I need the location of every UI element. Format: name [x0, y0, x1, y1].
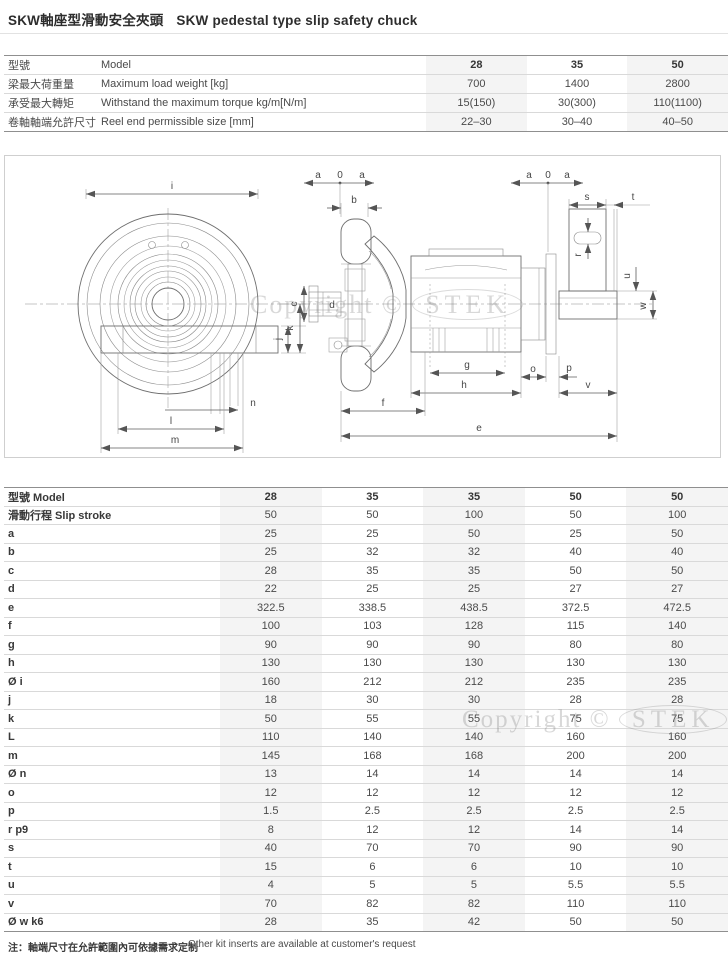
spec-label-en: Maximum load weight [kg]	[99, 75, 426, 94]
dim-label-m: m	[171, 435, 179, 446]
flange-top-rim	[341, 219, 371, 264]
dimension-row: 滑動行程 Slip stroke505010050100	[4, 506, 728, 525]
dimension-value: 140	[423, 728, 525, 747]
dimension-table-body: 型號 Model2835355050滑動行程 Slip stroke505010…	[4, 488, 728, 932]
dimension-value: 25	[423, 580, 525, 599]
dimension-row: g9090908080	[4, 636, 728, 655]
dimension-value: 50	[423, 525, 525, 544]
dimension-value: 115	[525, 617, 627, 636]
dim-label-l: l	[170, 416, 172, 427]
dimension-value: 12	[525, 784, 627, 803]
dimension-value: 15	[220, 858, 322, 877]
dimension-value: 30	[322, 691, 424, 710]
dim-label-p: p	[566, 363, 572, 374]
spec-row: 承受最大轉矩Withstand the maximum torque kg/m[…	[4, 94, 728, 113]
dimension-value: 14	[525, 765, 627, 784]
dimension-value: 5.5	[626, 876, 728, 895]
dimension-value: 50	[525, 913, 627, 932]
dimension-value: 2.5	[322, 802, 424, 821]
spec-value: 1400	[527, 75, 628, 94]
dim-label-a: a	[315, 170, 321, 181]
dimension-value: 103	[322, 617, 424, 636]
dimension-row-label: k	[4, 710, 220, 729]
spec-label-en: Model	[99, 56, 426, 75]
dimension-row-label: h	[4, 654, 220, 673]
dimension-value: 25	[220, 525, 322, 544]
dimension-value: 40	[525, 543, 627, 562]
dimension-row-label: s	[4, 839, 220, 858]
dimension-value: 90	[525, 839, 627, 858]
dim-label-o: o	[530, 364, 536, 375]
dimension-value: 168	[322, 747, 424, 766]
dimension-value: 14	[525, 821, 627, 840]
dimension-row-label: Ø i	[4, 673, 220, 692]
dimension-row: u4555.55.5	[4, 876, 728, 895]
dimension-row-label: o	[4, 784, 220, 803]
dimension-row-label: r p9	[4, 821, 220, 840]
dimension-value: 75	[626, 710, 728, 729]
dim-label-c: c	[289, 302, 300, 307]
dimension-header-value: 50	[626, 488, 728, 507]
dimension-value: 32	[322, 543, 424, 562]
dimension-value: 42	[423, 913, 525, 932]
dimension-value: 70	[322, 839, 424, 858]
key-slot	[574, 232, 601, 244]
title-divider	[0, 33, 728, 34]
dimension-value: 128	[423, 617, 525, 636]
dimension-row-label: 滑動行程 Slip stroke	[4, 506, 220, 525]
dim-label-w: w	[638, 302, 649, 311]
dim-label-s: s	[585, 192, 590, 203]
dimension-row-label: f	[4, 617, 220, 636]
dimension-value: 160	[525, 728, 627, 747]
dimension-value: 40	[626, 543, 728, 562]
bolt-hole-icon	[149, 242, 156, 249]
dimension-value: 35	[322, 913, 424, 932]
dimension-value: 70	[220, 895, 322, 914]
dimension-value: 438.5	[423, 599, 525, 618]
dimension-row: r p9812121414	[4, 821, 728, 840]
dimension-value: 50	[626, 562, 728, 581]
dimension-row: Ø w k62835425050	[4, 913, 728, 932]
page-title: SKW軸座型滑動安全夾頭SKW pedestal type slip safet…	[8, 9, 417, 29]
dimension-value: 28	[525, 691, 627, 710]
spec-row: 型號Model283550	[4, 56, 728, 75]
dimension-row-label: a	[4, 525, 220, 544]
dimension-value: 50	[525, 562, 627, 581]
dimension-value: 130	[423, 654, 525, 673]
dimension-value: 12	[423, 821, 525, 840]
dim-label-j: j	[273, 338, 284, 341]
spec-label-cn: 梁最大荷重量	[4, 75, 99, 94]
spec-value: 30–40	[527, 113, 628, 132]
dimension-value: 50	[220, 506, 322, 525]
dim-label-e: e	[476, 423, 482, 434]
dimension-row-label: v	[4, 895, 220, 914]
dimension-row: Ø i160212212235235	[4, 673, 728, 692]
dimension-value: 2.5	[626, 802, 728, 821]
dimension-value: 82	[423, 895, 525, 914]
dimension-header-value: 35	[423, 488, 525, 507]
spec-value: 40–50	[627, 113, 728, 132]
dimension-row-label: b	[4, 543, 220, 562]
dimension-value: 22	[220, 580, 322, 599]
dimension-value: 2.5	[423, 802, 525, 821]
technical-drawing: i k j n l m	[4, 155, 721, 458]
dimension-value: 140	[322, 728, 424, 747]
dimension-value: 75	[525, 710, 627, 729]
dimension-value: 25	[525, 525, 627, 544]
dimension-row-label: p	[4, 802, 220, 821]
dimension-value: 90	[220, 636, 322, 655]
dim-label-n: n	[250, 398, 256, 409]
dimension-row-label: t	[4, 858, 220, 877]
dimension-value: 25	[322, 580, 424, 599]
dimension-value: 235	[525, 673, 627, 692]
dimension-value: 90	[626, 839, 728, 858]
dimension-value: 10	[525, 858, 627, 877]
dimension-value: 2.5	[525, 802, 627, 821]
dimension-value: 110	[525, 895, 627, 914]
dimension-row-label: Ø w k6	[4, 913, 220, 932]
dimension-value: 160	[220, 673, 322, 692]
dim-label-k: k	[285, 325, 296, 331]
dimension-value: 18	[220, 691, 322, 710]
dimension-value: 140	[626, 617, 728, 636]
dimension-value: 100	[423, 506, 525, 525]
dimension-row-label: d	[4, 580, 220, 599]
chuck-drawing-svg: i k j n l m	[5, 156, 720, 457]
dimension-value: 12	[626, 784, 728, 803]
dimension-value: 50	[322, 506, 424, 525]
dimension-value: 12	[220, 784, 322, 803]
flange-web	[348, 264, 362, 346]
dimension-value: 13	[220, 765, 322, 784]
dimension-value: 50	[626, 913, 728, 932]
dimension-row: h130130130130130	[4, 654, 728, 673]
dim-label-f: f	[382, 398, 385, 409]
dimension-row: j1830302828	[4, 691, 728, 710]
dimension-value: 25	[322, 525, 424, 544]
flange-bottom-rim	[341, 346, 371, 391]
dimension-row: Ø n1314141414	[4, 765, 728, 784]
dimension-value: 100	[220, 617, 322, 636]
dimension-value: 55	[423, 710, 525, 729]
dim-label-r: r	[573, 253, 584, 257]
dimension-value: 12	[322, 821, 424, 840]
dimension-value: 40	[220, 839, 322, 858]
dimension-value: 14	[423, 765, 525, 784]
datasheet-page: SKW軸座型滑動安全夾頭SKW pedestal type slip safet…	[0, 0, 728, 975]
dimension-row: e322.5338.5438.5372.5472.5	[4, 599, 728, 618]
front-view-dimensions: i k j n l m	[86, 181, 306, 453]
dimension-value: 32	[423, 543, 525, 562]
dimension-value: 50	[626, 525, 728, 544]
dimension-row: a2525502550	[4, 525, 728, 544]
dimension-value: 130	[322, 654, 424, 673]
dimension-row: k5055557575	[4, 710, 728, 729]
dimension-value: 212	[423, 673, 525, 692]
dimension-header-row: 型號 Model2835355050	[4, 488, 728, 507]
dimension-value: 1.5	[220, 802, 322, 821]
page-title-cn: SKW軸座型滑動安全夾頭	[8, 13, 163, 28]
dimension-value: 12	[322, 784, 424, 803]
dimension-header-label: 型號 Model	[4, 488, 220, 507]
dimension-row-label: j	[4, 691, 220, 710]
dimension-value: 338.5	[322, 599, 424, 618]
dimension-value: 28	[220, 913, 322, 932]
dimension-value: 14	[626, 765, 728, 784]
output-shaft	[559, 291, 617, 319]
spec-row: 卷軸軸端允許尺寸Reel end permissible size [mm]22…	[4, 113, 728, 132]
dimension-value: 5	[423, 876, 525, 895]
dimension-row: b2532324040	[4, 543, 728, 562]
footnote-en: Other kit inserts are available at custo…	[188, 939, 416, 950]
dimension-header-value: 28	[220, 488, 322, 507]
spec-value: 22–30	[426, 113, 527, 132]
dimension-value: 322.5	[220, 599, 322, 618]
dimension-header-value: 50	[525, 488, 627, 507]
dimension-row: s4070709090	[4, 839, 728, 858]
dimension-value: 160	[626, 728, 728, 747]
section-view-dimensions: a 0 a a 0 a b c d	[289, 170, 657, 442]
dimension-value: 80	[525, 636, 627, 655]
spec-value: 15(150)	[426, 94, 527, 113]
dimension-value: 6	[423, 858, 525, 877]
spec-label-en: Reel end permissible size [mm]	[99, 113, 426, 132]
spec-table-body: 型號Model283550梁最大荷重量Maximum load weight […	[4, 56, 728, 132]
dimension-value: 4	[220, 876, 322, 895]
dimension-value: 70	[423, 839, 525, 858]
spec-value: 30(300)	[527, 94, 628, 113]
dimension-value: 30	[423, 691, 525, 710]
dim-label-t: t	[632, 192, 635, 203]
dimension-row: t15661010	[4, 858, 728, 877]
spec-value: 110(1100)	[627, 94, 728, 113]
dimension-value: 5.5	[525, 876, 627, 895]
dim-label-h: h	[461, 380, 467, 391]
dimension-value: 130	[626, 654, 728, 673]
spec-label-cn: 型號	[4, 56, 99, 75]
dimension-row: v708282110110	[4, 895, 728, 914]
spec-table: 型號Model283550梁最大荷重量Maximum load weight […	[4, 55, 728, 132]
dimension-value: 55	[322, 710, 424, 729]
dimension-value: 212	[322, 673, 424, 692]
dimension-row-label: e	[4, 599, 220, 618]
footnote-cn: 注：軸端尺寸在允許範圍內可依據需求定制	[8, 939, 198, 954]
dimension-row: c2835355050	[4, 562, 728, 581]
dimension-row: m145168168200200	[4, 747, 728, 766]
spec-label-en: Withstand the maximum torque kg/m[N/m]	[99, 94, 426, 113]
dimension-row: o1212121212	[4, 784, 728, 803]
dimension-value: 130	[525, 654, 627, 673]
dimension-value: 235	[626, 673, 728, 692]
dimension-value: 168	[423, 747, 525, 766]
dimension-row-label: Ø n	[4, 765, 220, 784]
dimension-value: 90	[423, 636, 525, 655]
dimension-value: 27	[525, 580, 627, 599]
dimension-table: 型號 Model2835355050滑動行程 Slip stroke505010…	[4, 487, 728, 932]
dimension-value: 80	[626, 636, 728, 655]
dim-label-a: a	[526, 170, 532, 181]
dim-label-d: d	[329, 300, 335, 311]
dimension-value: 25	[220, 543, 322, 562]
dimension-value: 372.5	[525, 599, 627, 618]
spec-label-cn: 卷軸軸端允許尺寸	[4, 113, 99, 132]
spec-value: 35	[527, 56, 628, 75]
spec-value: 700	[426, 75, 527, 94]
dimension-row-label: m	[4, 747, 220, 766]
dimension-value: 82	[322, 895, 424, 914]
dimension-value: 110	[220, 728, 322, 747]
dimension-value: 200	[626, 747, 728, 766]
dim-label-b: b	[351, 195, 357, 206]
dimension-value: 50	[220, 710, 322, 729]
dim-label-a: a	[564, 170, 570, 181]
dimension-value: 10	[626, 858, 728, 877]
dimension-value: 100	[626, 506, 728, 525]
dimension-value: 28	[626, 691, 728, 710]
dimension-value: 14	[626, 821, 728, 840]
dimension-value: 145	[220, 747, 322, 766]
dimension-value: 472.5	[626, 599, 728, 618]
dim-label-g: g	[464, 360, 470, 371]
dimension-header-value: 35	[322, 488, 424, 507]
spec-value: 28	[426, 56, 527, 75]
dim-label-zero: 0	[337, 170, 343, 181]
dimension-row: p1.52.52.52.52.5	[4, 802, 728, 821]
dim-label-v: v	[586, 380, 591, 391]
dimension-value: 90	[322, 636, 424, 655]
spec-value: 50	[627, 56, 728, 75]
spec-label-cn: 承受最大轉矩	[4, 94, 99, 113]
dim-label-a: a	[359, 170, 365, 181]
keyway-plan	[569, 209, 606, 291]
dim-label-zero: 0	[545, 170, 551, 181]
dimension-value: 50	[525, 506, 627, 525]
spec-value: 2800	[627, 75, 728, 94]
page-title-en: SKW pedestal type slip safety chuck	[176, 13, 417, 28]
dimension-value: 35	[423, 562, 525, 581]
dimension-row: L110140140160160	[4, 728, 728, 747]
dimension-value: 8	[220, 821, 322, 840]
bolt-hole-icon	[182, 242, 189, 249]
dimension-value: 14	[322, 765, 424, 784]
dimension-row-label: L	[4, 728, 220, 747]
dimension-row: f100103128115140	[4, 617, 728, 636]
dimension-row-label: c	[4, 562, 220, 581]
dim-label-i: i	[171, 181, 173, 192]
dimension-row-label: g	[4, 636, 220, 655]
dimension-value: 200	[525, 747, 627, 766]
dim-label-u: u	[622, 273, 633, 279]
dimension-value: 27	[626, 580, 728, 599]
dimension-value: 5	[322, 876, 424, 895]
bolt-icon	[334, 341, 342, 349]
dimension-value: 28	[220, 562, 322, 581]
dimension-value: 12	[423, 784, 525, 803]
dimension-value: 6	[322, 858, 424, 877]
dimension-value: 110	[626, 895, 728, 914]
dimension-value: 35	[322, 562, 424, 581]
dimension-row: d2225252727	[4, 580, 728, 599]
spec-row: 梁最大荷重量Maximum load weight [kg]7001400280…	[4, 75, 728, 94]
dimension-value: 130	[220, 654, 322, 673]
dimension-row-label: u	[4, 876, 220, 895]
